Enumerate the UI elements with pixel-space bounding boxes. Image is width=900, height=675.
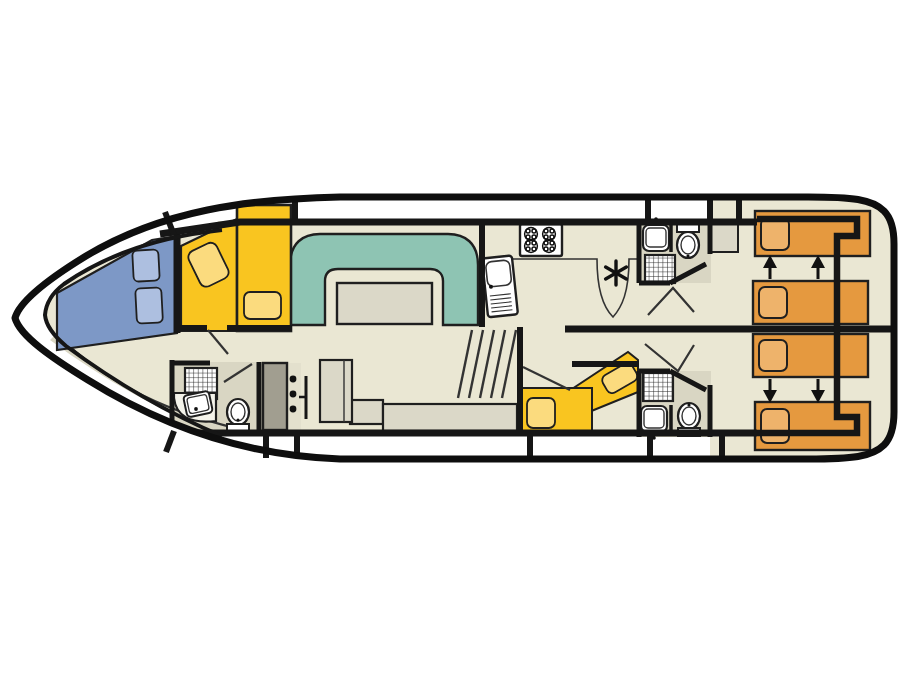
helm-dot [290, 376, 297, 383]
toilet-dot [686, 254, 689, 257]
bench-step [350, 400, 383, 424]
pillow [761, 218, 789, 250]
pillow [759, 340, 787, 371]
pillow [135, 287, 163, 323]
shower-grid-hatch [645, 255, 675, 283]
pillow [761, 409, 789, 443]
pillow [132, 249, 160, 281]
boat-deck-plan [0, 0, 900, 675]
stern-cabinet [710, 224, 738, 252]
tall-cabinet [320, 360, 352, 422]
galley-sink [482, 255, 518, 317]
page [0, 0, 900, 675]
bench-seat [383, 404, 517, 431]
helm-instrument-dots [290, 376, 297, 413]
helm-dot [290, 391, 297, 398]
toilet-dot [687, 403, 690, 406]
salon-table [337, 283, 432, 324]
toilet-dot [236, 418, 239, 421]
pillow [527, 398, 555, 428]
pillow [759, 287, 787, 318]
pillow [244, 292, 281, 319]
stove [520, 224, 562, 256]
helm-console [263, 363, 287, 430]
shower-grid-hatch [643, 373, 673, 401]
helm-dot [290, 406, 297, 413]
faucet-icon [194, 407, 198, 411]
